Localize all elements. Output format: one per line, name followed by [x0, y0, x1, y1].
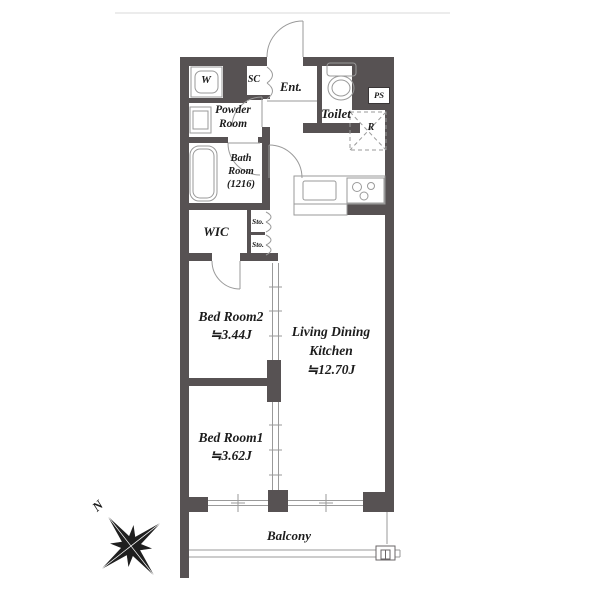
bath-room-line2: Room — [211, 165, 271, 178]
entrance-label: Ent. — [271, 80, 311, 96]
powder-room-line1: Powder — [193, 103, 273, 117]
bath-room-line3: (1216) — [211, 178, 271, 191]
shoe-closet-label: SC — [242, 74, 266, 87]
refrigerator-label: R — [361, 122, 381, 135]
entrance-door-icon — [267, 21, 303, 57]
bedroom2-door-icon — [212, 261, 240, 289]
ldk-area: ≒12.70J — [266, 360, 396, 379]
powder-room-line2: Room — [193, 117, 273, 131]
toilet-label: Toilet — [306, 106, 366, 122]
kitchen-counter-icon — [294, 176, 385, 215]
ldk-label: Living Dining Kitchen ≒12.70J — [266, 322, 396, 379]
balcony-label: Balcony — [239, 528, 339, 544]
washer-label: W — [196, 74, 216, 88]
ldk-line1: Living Dining — [266, 322, 396, 341]
bedroom1-label: Bed Room1 ≒3.62J — [171, 429, 291, 464]
evacuation-hatch-icon — [376, 546, 395, 560]
storage-lower-label: Sto. — [246, 240, 270, 249]
ldk-line2: Kitchen — [266, 341, 396, 360]
compass-icon — [103, 518, 160, 575]
powder-room-label: Powder Room — [193, 103, 273, 132]
floorplan-canvas: W SC Ent. Toilet PS R Powder Room Bath R… — [0, 0, 600, 600]
pipe-space-label: PS — [369, 90, 389, 101]
bedroom1-area: ≒3.62J — [171, 447, 291, 465]
bath-room-line1: Bath — [211, 152, 271, 165]
wic-label: WIC — [186, 224, 246, 240]
toilet-icon — [327, 63, 356, 100]
bath-room-label: Bath Room (1216) — [211, 152, 271, 191]
ldk-door-icon — [269, 145, 302, 178]
storage-upper-label: Sto. — [246, 217, 270, 226]
window-icons — [208, 494, 363, 512]
bedroom1-name: Bed Room1 — [171, 429, 291, 447]
